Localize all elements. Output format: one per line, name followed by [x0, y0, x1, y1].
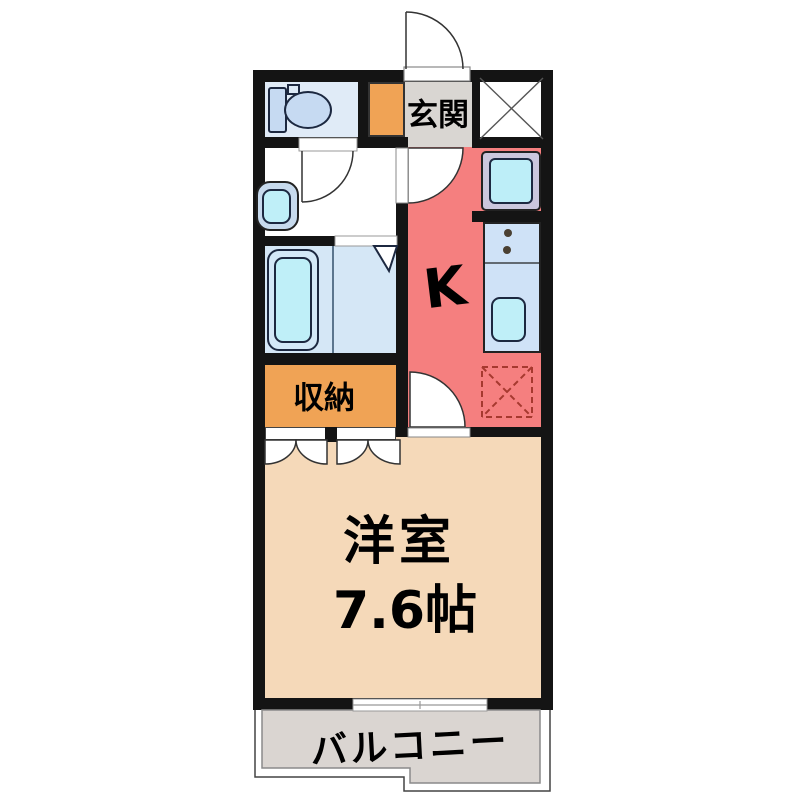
room-name-label: 洋室: [343, 516, 455, 568]
wall-toilet-right: [358, 82, 368, 137]
entrance-label: 玄関: [407, 101, 469, 132]
wall-toilet-bottom: [253, 137, 408, 148]
room-size-label: 7.6帖: [333, 585, 477, 637]
floorplan: 玄関 K 収納 洋室 7.6帖 バルコニー: [0, 0, 800, 800]
wall-washroom-kitchen: [396, 137, 408, 437]
kitchen-sink: [491, 297, 526, 342]
wall-bottom: [253, 698, 553, 710]
vanity-basin: [262, 189, 291, 224]
wall-kitchen-room: [396, 427, 541, 437]
kitchen-label: K: [421, 259, 469, 318]
washer-pan-inner: [489, 158, 533, 204]
balcony-label: バルコニー: [310, 722, 511, 769]
wall-bath-bottom: [253, 353, 408, 365]
wall-counter-top: [472, 211, 541, 222]
wall-top: [253, 70, 553, 82]
toilet-bowl: [284, 91, 332, 129]
wall-left: [253, 82, 265, 710]
entrance-door-arc: [406, 12, 463, 69]
wall-washroom-bath: [253, 236, 408, 246]
shaft-box-inner: [480, 78, 543, 139]
storage-label: 収納: [293, 384, 355, 415]
bathtub-inner: [274, 257, 312, 343]
closet-center-post: [325, 427, 337, 442]
shoe-cabinet: [368, 82, 405, 137]
wall-right: [541, 82, 553, 710]
wall-under-shaft: [472, 137, 553, 148]
